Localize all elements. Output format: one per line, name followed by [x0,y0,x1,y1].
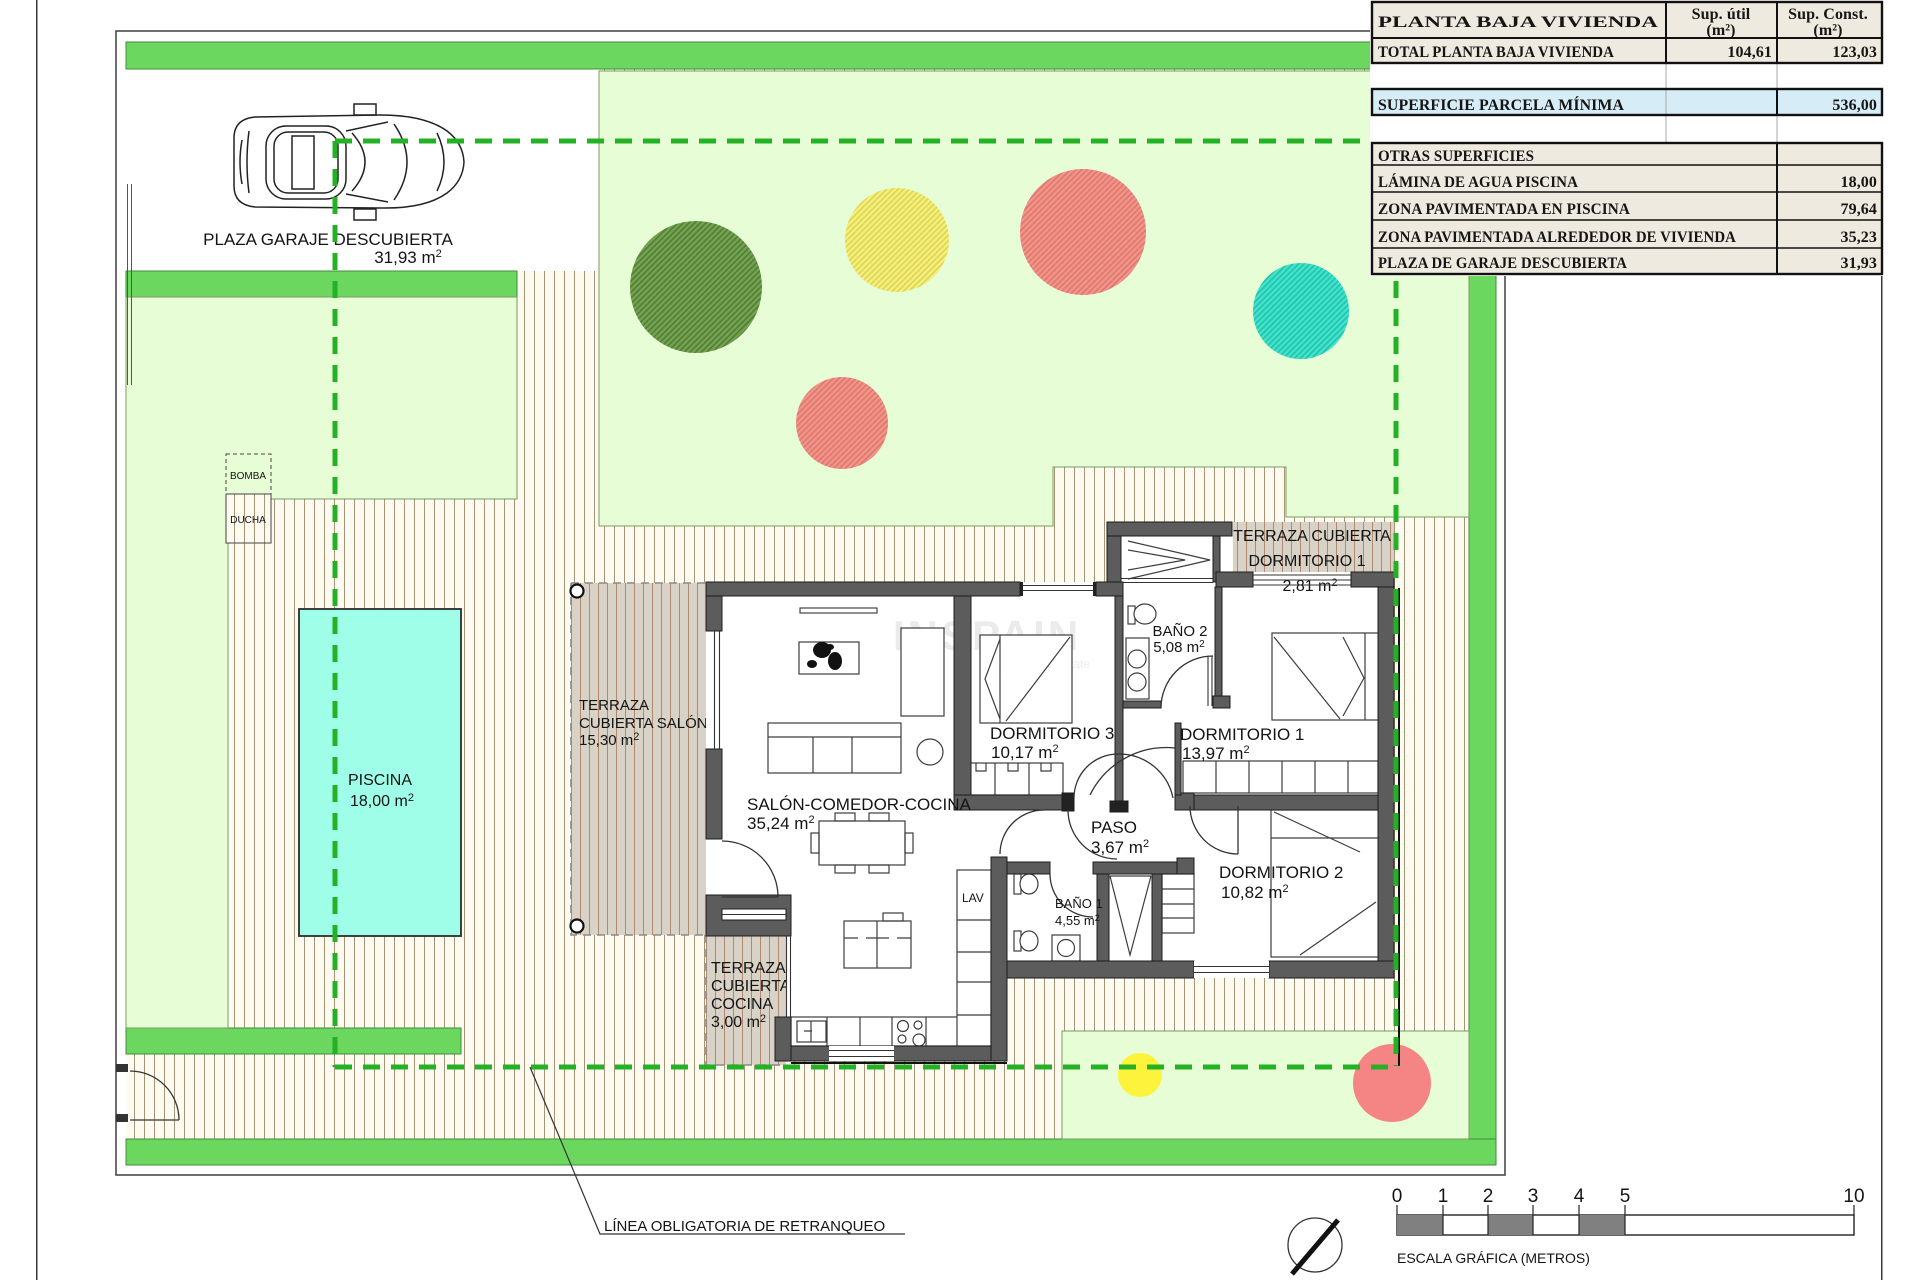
svg-text:4: 4 [1574,1186,1585,1207]
svg-text:OTRAS SUPERFICIES: OTRAS SUPERFICIES [1378,148,1534,165]
svg-text:5: 5 [1620,1186,1631,1207]
svg-text:536,00: 536,00 [1832,97,1877,114]
svg-text:3,67 m2: 3,67 m2 [1091,838,1149,857]
svg-text:LÍNEA OBLIGATORIA DE RETRANQUE: LÍNEA OBLIGATORIA DE RETRANQUEO [604,1218,885,1235]
svg-text:3,00 m2: 3,00 m2 [711,1013,766,1031]
svg-text:10,82 m2: 10,82 m2 [1221,883,1289,902]
svg-text:ESCALA GRÁFICA (METROS): ESCALA GRÁFICA (METROS) [1397,1250,1590,1266]
svg-text:123,03: 123,03 [1832,44,1877,61]
svg-text:CUBIERTA: CUBIERTA [711,978,791,995]
svg-text:BOMBA: BOMBA [230,471,266,482]
svg-text:COCINA: COCINA [711,996,774,1013]
svg-text:(m²): (m²) [1813,22,1842,39]
svg-text:18,00: 18,00 [1841,174,1878,191]
svg-text:5,08 m2: 5,08 m2 [1153,639,1205,656]
svg-text:10,17 m2: 10,17 m2 [991,743,1059,762]
svg-text:31,93: 31,93 [1841,255,1878,272]
svg-text:LAV: LAV [962,891,984,905]
svg-text:PASO: PASO [1091,818,1137,837]
svg-text:35,23: 35,23 [1841,229,1878,246]
svg-text:PLANTA BAJA VIVIENDA: PLANTA BAJA VIVIENDA [1378,14,1658,31]
svg-text:BAÑO 2: BAÑO 2 [1152,623,1207,640]
svg-text:TERRAZA: TERRAZA [579,697,649,714]
svg-text:PLAZA GARAJE DESCUBIERTA: PLAZA GARAJE DESCUBIERTA [203,230,453,249]
svg-text:15,30 m2: 15,30 m2 [579,731,639,749]
svg-text:0: 0 [1392,1186,1403,1207]
svg-text:35,24 m2: 35,24 m2 [747,814,815,833]
svg-text:3: 3 [1528,1186,1539,1207]
svg-text:PLAZA DE GARAJE DESCUBIERTA: PLAZA DE GARAJE DESCUBIERTA [1378,255,1627,272]
svg-text:10: 10 [1843,1186,1864,1207]
svg-text:LÁMINA DE AGUA PISCINA: LÁMINA DE AGUA PISCINA [1378,172,1578,191]
svg-text:DORMITORIO 1: DORMITORIO 1 [1180,725,1304,744]
svg-text:Sup. Const.: Sup. Const. [1788,6,1868,23]
svg-text:TERRAZA: TERRAZA [711,960,786,977]
svg-text:31,93 m2: 31,93 m2 [374,248,442,267]
svg-text:SALÓN-COMEDOR-COCINA: SALÓN-COMEDOR-COCINA [747,795,972,814]
svg-text:TERRAZA CUBIERTA: TERRAZA CUBIERTA [1233,528,1391,545]
svg-text:DORMITORIO 1: DORMITORIO 1 [1248,553,1365,570]
svg-text:ZONA PAVIMENTADA EN PISCINA: ZONA PAVIMENTADA EN PISCINA [1378,201,1630,218]
svg-text:104,61: 104,61 [1727,44,1772,61]
svg-text:1: 1 [1438,1186,1449,1207]
svg-text:4,55 m2: 4,55 m2 [1055,913,1100,928]
svg-text:13,97 m2: 13,97 m2 [1182,744,1250,763]
svg-text:SUPERFICIE PARCELA MÍNIMA: SUPERFICIE PARCELA MÍNIMA [1378,95,1624,114]
svg-text:(m²): (m²) [1706,22,1735,39]
svg-text:ZONA PAVIMENTADA ALREDEDOR DE: ZONA PAVIMENTADA ALREDEDOR DE VIVIENDA [1378,229,1736,246]
svg-text:DORMITORIO 3: DORMITORIO 3 [990,724,1114,743]
svg-text:PISCINA: PISCINA [348,772,412,789]
svg-text:18,00 m2: 18,00 m2 [350,792,414,810]
svg-text:CUBIERTA SALÓN: CUBIERTA SALÓN [579,715,708,732]
svg-text:DORMITORIO 2: DORMITORIO 2 [1219,863,1343,882]
svg-text:BAÑO 1: BAÑO 1 [1055,896,1103,911]
svg-text:Sup. útil: Sup. útil [1692,6,1751,23]
svg-text:2: 2 [1483,1186,1494,1207]
svg-text:DUCHA: DUCHA [230,515,266,526]
svg-text:TOTAL PLANTA BAJA VIVIENDA: TOTAL PLANTA BAJA VIVIENDA [1378,44,1614,61]
svg-text:79,64: 79,64 [1841,201,1878,218]
